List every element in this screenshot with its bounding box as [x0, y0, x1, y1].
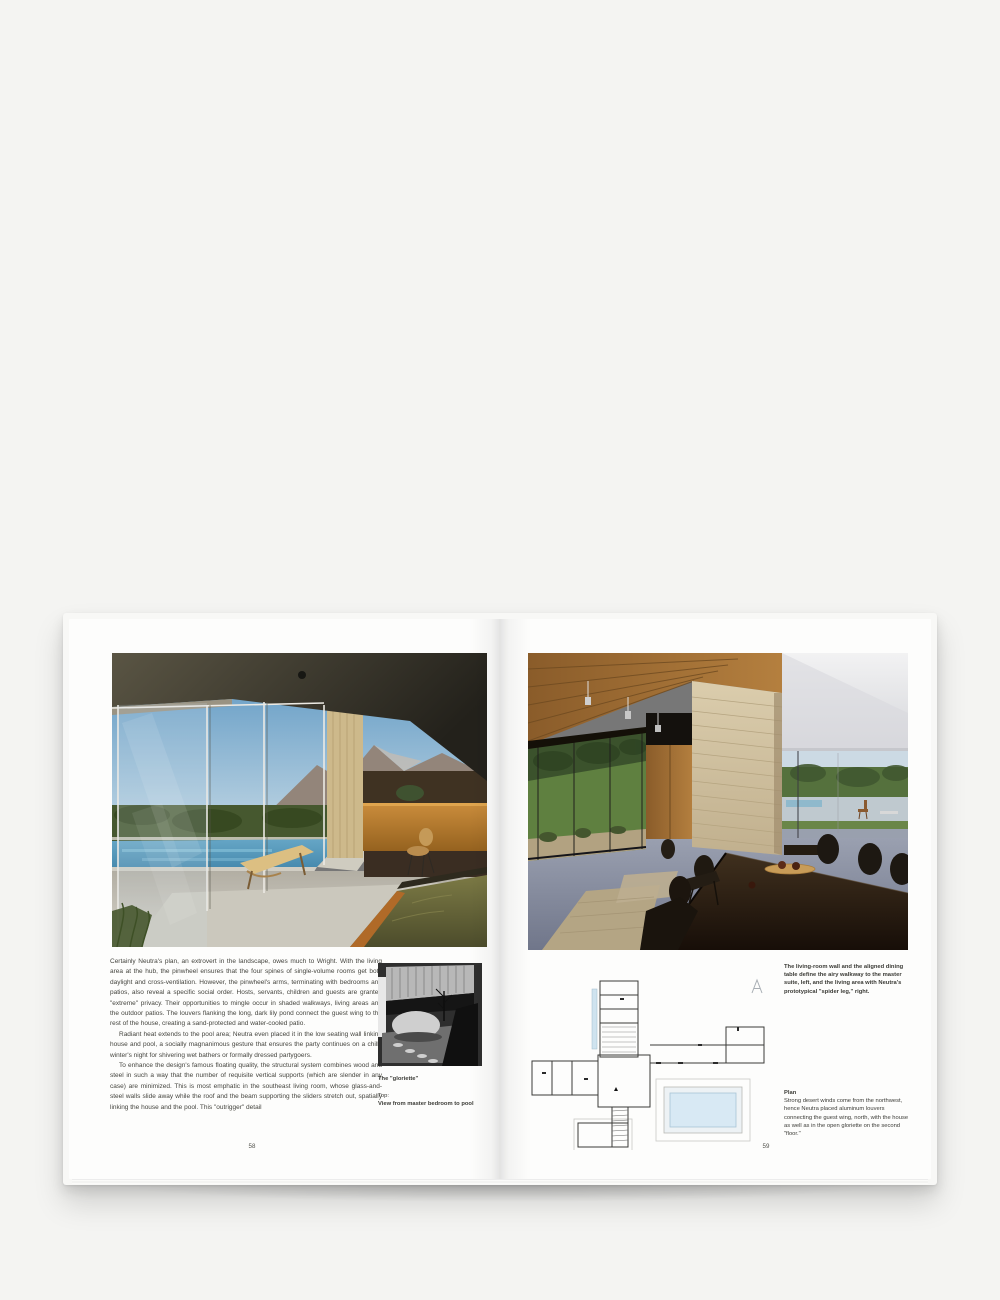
caption-label: Top:: [378, 1092, 492, 1100]
gloriette-bw-photo: [378, 963, 482, 1066]
left-page-interior-photo: [112, 653, 487, 947]
north-arrow-icon: [752, 980, 762, 993]
living-room-pool-illustration: [112, 653, 487, 947]
body-paragraph: Radiant heat extends to the pool area; N…: [110, 1030, 382, 1061]
plan-caption: Plan Strong desert winds come from the n…: [784, 1089, 912, 1138]
left-page-body-text: Certainly Neutra's plan, an extrovert in…: [110, 957, 382, 1113]
door-marks: [542, 999, 738, 1079]
caption-bold-line: View from master bedroom to pool: [378, 1100, 492, 1108]
distant-sky: [782, 751, 908, 767]
dining-area-illustration: [528, 653, 908, 950]
body-paragraph: Certainly Neutra's plan, an extrovert in…: [110, 957, 382, 1030]
stair-rungs: [612, 1110, 628, 1141]
curtain: [327, 708, 363, 858]
floor-plan-drawing: [528, 975, 768, 1150]
right-page-interior-photo: [528, 653, 908, 950]
plan-caption-body: Strong desert winds come from the northw…: [784, 1097, 912, 1138]
lily-pond-shape: [592, 989, 597, 1049]
pool-shape: [670, 1093, 736, 1127]
book-open-spread: Certainly Neutra's plan, an extrovert in…: [69, 619, 931, 1179]
stone-pillar: [692, 681, 782, 855]
distant-pool: [786, 800, 822, 807]
ceiling-light: [298, 671, 306, 679]
pinwheel-plan-illustration: [528, 975, 768, 1150]
body-paragraph: To enhance the design's famous floating …: [110, 1061, 382, 1113]
gloriette-illustration: [378, 963, 482, 1066]
photo-backdrop: Certainly Neutra's plan, an extrovert in…: [0, 0, 1000, 1300]
right-photo-caption: The living-room wall and the aligned din…: [784, 963, 912, 996]
distant-lounger: [880, 811, 898, 814]
page-number-left: 58: [222, 1143, 282, 1150]
caption-title: The "gloriette": [378, 1075, 492, 1083]
gloriette-caption: The "gloriette" Top: View from master be…: [378, 1075, 492, 1109]
louver-hatching: [602, 1027, 636, 1052]
plan-caption-title: Plan: [784, 1089, 912, 1097]
page-number-right: 59: [736, 1143, 796, 1150]
desk-plant: [396, 785, 424, 801]
